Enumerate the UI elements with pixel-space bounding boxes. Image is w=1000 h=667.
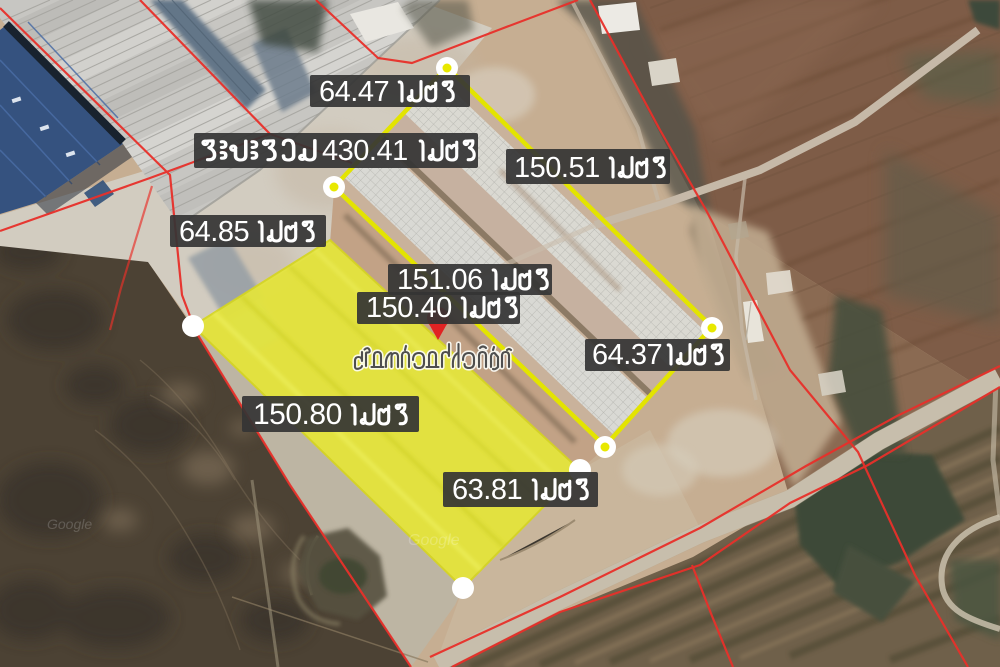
- svg-text:64.47: 64.47: [319, 76, 389, 108]
- svg-text:63.81: 63.81: [452, 474, 522, 506]
- svg-text:430.41: 430.41: [322, 135, 408, 167]
- svg-text:Google: Google: [47, 516, 92, 532]
- svg-text:150.80: 150.80: [253, 398, 342, 431]
- svg-text:64.85: 64.85: [179, 216, 249, 248]
- svg-text:150.51: 150.51: [514, 152, 600, 184]
- svg-text:64.37: 64.37: [592, 339, 662, 371]
- svg-text:150.40: 150.40: [366, 292, 452, 324]
- svg-text:Google: Google: [408, 532, 460, 549]
